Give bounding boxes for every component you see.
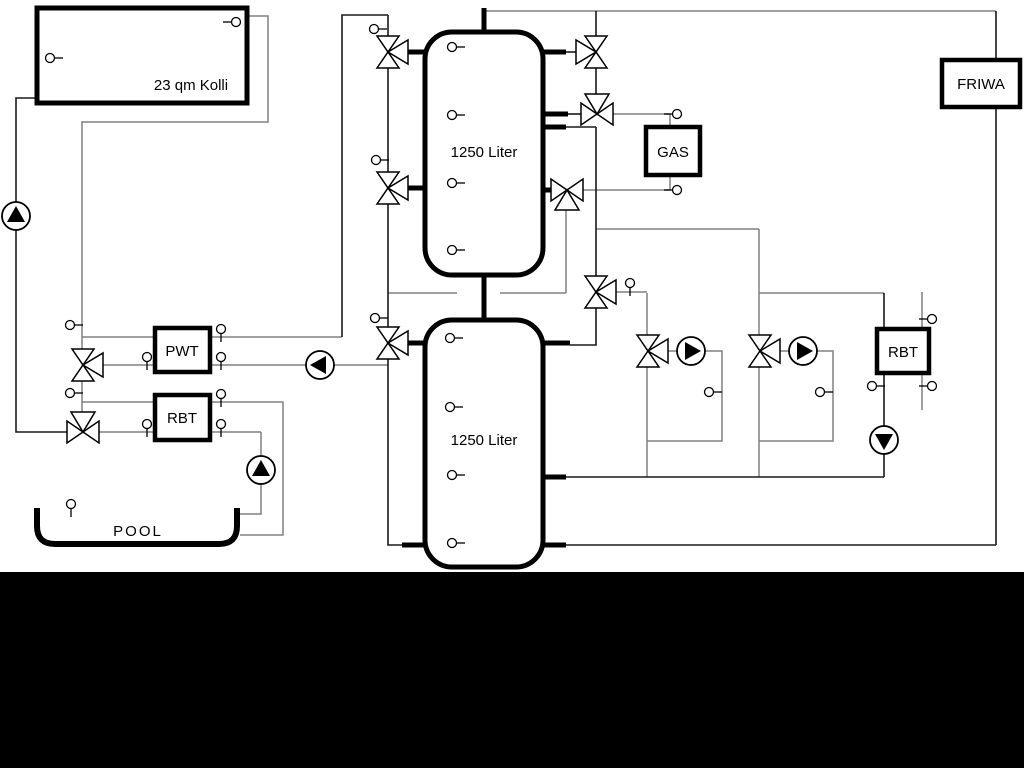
friwa-label: FRIWA [957,76,1005,93]
sensor-solar-flow-icon [66,321,84,330]
pump-pool-icon [247,456,275,484]
sensor-rbt-in-icon [143,420,152,438]
pump-circuit1-icon [677,337,705,365]
valve-tank1-right-mid [551,179,583,210]
gas-label: GAS [657,144,689,161]
valve-gas-flow [581,94,613,125]
sensor-rbt-top-out-icon [217,390,226,408]
valve-tank1-left-mid [377,172,408,204]
pipe-group1-feed [616,292,647,477]
pipe-heating-flow [566,127,596,345]
hydraulic-schematic: 23 qm Kolli 1250 Liter 1250 Liter PWT RB… [0,0,1024,768]
valve-circuit1-mix [637,335,668,367]
sensor-pwt-in-icon [143,353,152,371]
pump-rbt-right-icon [870,426,898,454]
valve-solar-pwt [72,349,103,381]
valve-circuit2-mix [749,335,780,367]
tank1-label: 1250 Liter [451,144,518,161]
sensor-rbt-out-icon [217,420,226,438]
pool-label: POOL [113,523,163,540]
bottom-black-band [0,572,1024,768]
sensor-pwt-top-out-icon [217,325,226,343]
sensor-solar-mid-icon [66,389,84,398]
pipe-collector-return [16,98,67,432]
sensor-rbt-right-in-icon [868,382,886,391]
rbt-right-label: RBT [888,344,918,361]
rbt-left-label: RBT [167,410,197,427]
collector-label: 23 qm Kolli [154,77,228,94]
valve-tank1-left-top [377,36,408,68]
sensor-heating-flow-icon [626,279,635,297]
valve-tank2-left [377,327,408,359]
valve-tank1-right-top [576,36,607,68]
sensor-gas-flow-icon [664,110,682,119]
sensor-valve2-icon [372,156,390,165]
pwt-label: PWT [165,343,198,360]
sensor-circuit1-icon [705,388,723,397]
pump-solar-icon [2,202,30,230]
valve-pool-return [67,412,99,443]
valve-heating-mix [585,276,616,308]
pump-circuit2-icon [789,337,817,365]
sensor-pool-icon [67,500,76,518]
pipe-solar-riser [388,68,402,545]
sensor-circuit2-icon [816,388,834,397]
schematic-canvas: 23 qm Kolli 1250 Liter 1250 Liter PWT RB… [0,0,1024,768]
sensor-gas-return-icon [664,186,682,195]
sensor-valve1-icon [370,25,388,34]
tank2-label: 1250 Liter [451,432,518,449]
sensor-pwt-out-icon [217,353,226,371]
pump-pwt-icon [306,351,334,379]
sensor-valve3-icon [371,314,389,323]
